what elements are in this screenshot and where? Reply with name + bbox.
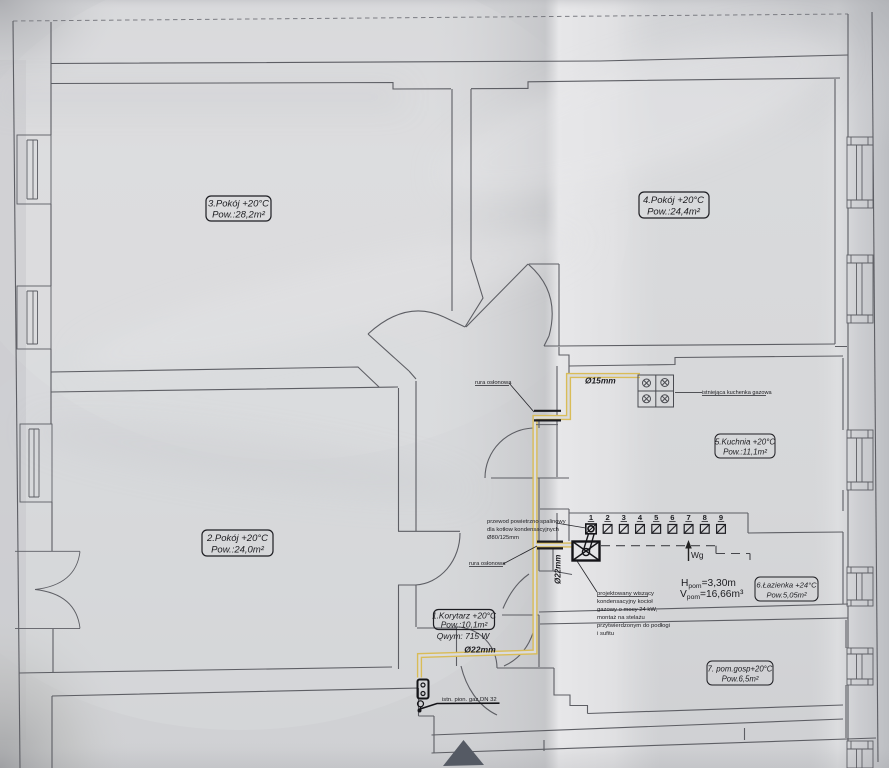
svg-text:Qwym: 715 W: Qwym: 715 W [437,631,491,641]
svg-text:Pow.:24,4m²: Pow.:24,4m² [647,207,701,218]
svg-text:7. pom.gosp+20°C: 7. pom.gosp+20°C [708,665,773,674]
svg-text:gazowy o mocy 24 kW,: gazowy o mocy 24 kW, [597,607,658,613]
svg-text:Pow.6,5m²: Pow.6,5m² [722,675,759,684]
svg-text:6: 6 [670,513,674,522]
svg-text:2: 2 [605,513,609,522]
svg-text:5.Kuchnia +20°C: 5.Kuchnia +20°C [715,438,776,447]
svg-text:istn. pion. gaz.DN 32: istn. pion. gaz.DN 32 [442,697,497,703]
svg-text:i sufitu: i sufitu [597,631,614,637]
svg-text:3: 3 [622,513,626,522]
svg-text:Ø22mm: Ø22mm [464,645,496,655]
svg-text:kondensacyjny kocioł: kondensacyjny kocioł [597,599,653,605]
svg-text:7: 7 [686,513,690,522]
svg-text:3.Pokój +20°C: 3.Pokój +20°C [208,199,269,210]
svg-text:Ø22mm: Ø22mm [554,555,563,584]
svg-text:Ø80/125mm: Ø80/125mm [487,535,519,541]
svg-text:Pow.:24,0m²: Pow.:24,0m² [211,545,265,556]
svg-text:6.Łazienka +24°C: 6.Łazienka +24°C [756,581,817,590]
svg-text:Ø15mm: Ø15mm [585,376,616,386]
svg-text:Wg: Wg [691,550,704,560]
svg-text:Pow.:10,1m²: Pow.:10,1m² [441,619,489,629]
svg-text:przewod powietrzno spalinowy: przewod powietrzno spalinowy [487,519,566,525]
svg-text:4.Pokój +20°C: 4.Pokój +20°C [643,195,704,206]
svg-text:9: 9 [719,513,723,522]
svg-text:dla kotłow kondensacyjnych: dla kotłow kondensacyjnych [487,527,559,533]
svg-text:Pow.:28,2m²: Pow.:28,2m² [212,210,266,221]
svg-text:przytwierdzonym do podłogi: przytwierdzonym do podłogi [597,623,670,629]
svg-text:montaż na stelażu: montaż na stelażu [597,615,645,621]
svg-text:8: 8 [703,513,707,522]
svg-text:Pow.:11,1m²: Pow.:11,1m² [723,448,767,457]
svg-text:2.Pokój +20°C: 2.Pokój +20°C [206,533,268,544]
svg-text:Pow.5,05m²: Pow.5,05m² [766,591,807,600]
